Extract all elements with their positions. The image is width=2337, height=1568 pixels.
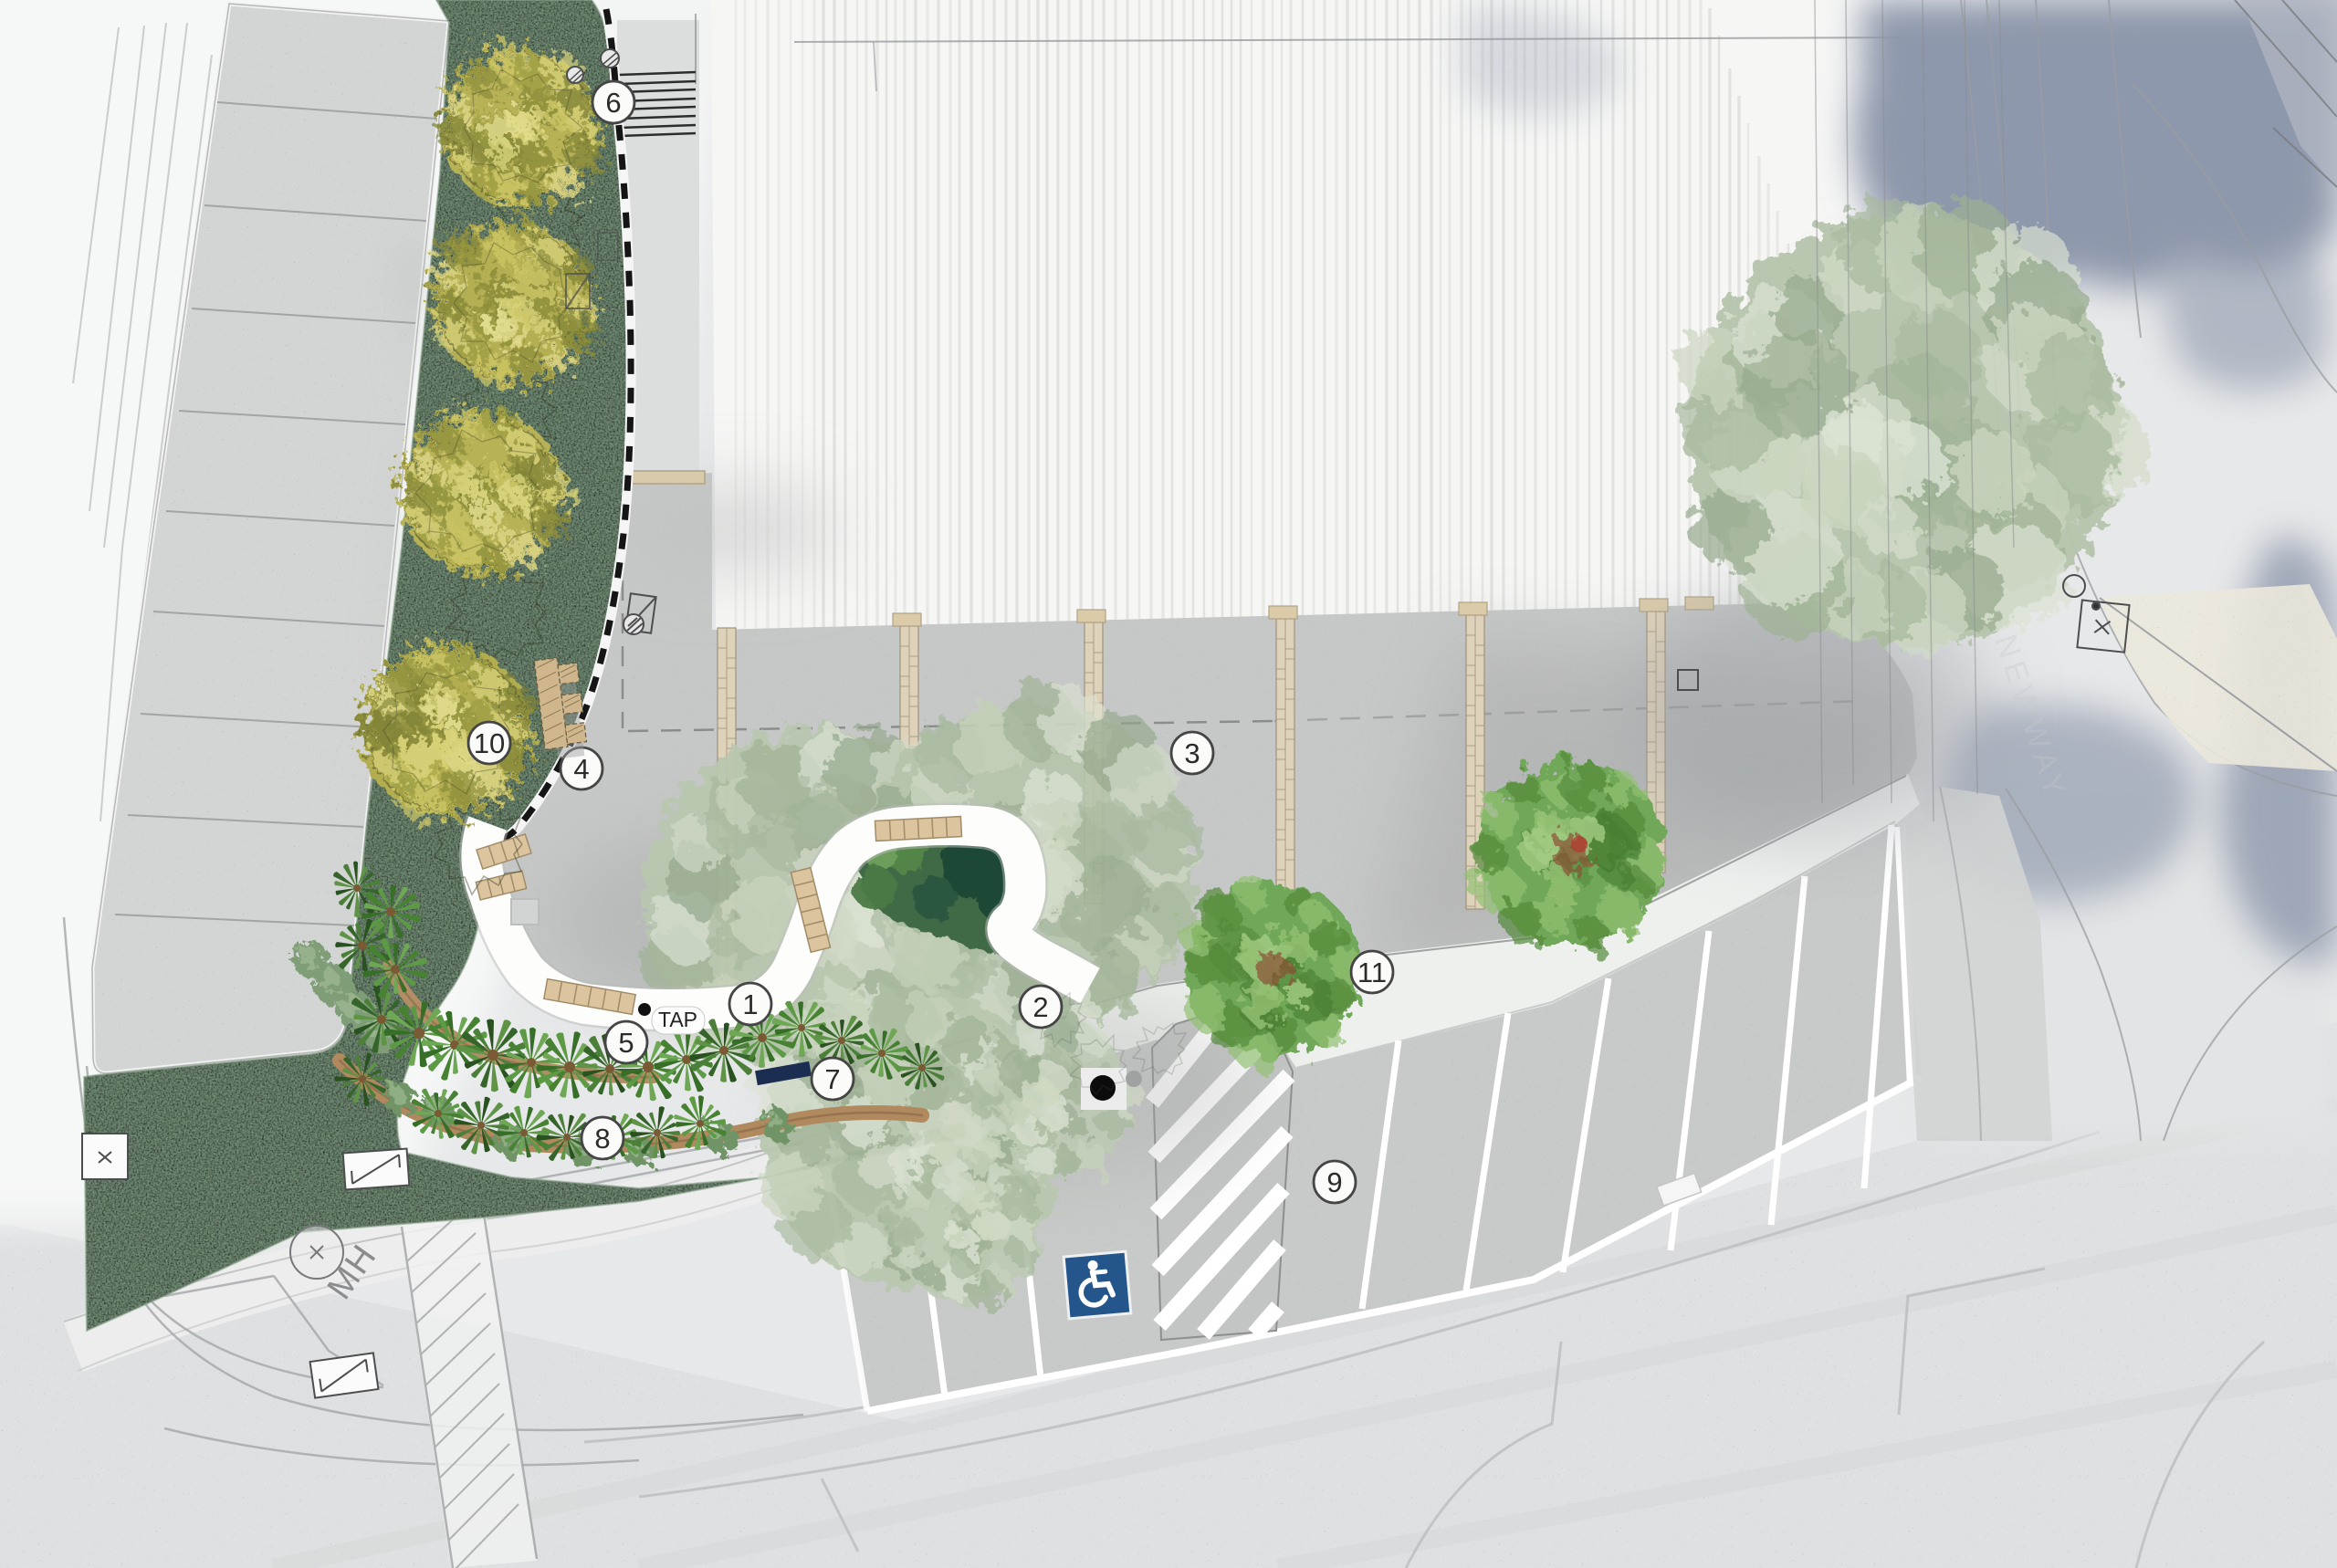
svg-text:7: 7 xyxy=(824,1063,840,1095)
svg-text:4: 4 xyxy=(573,753,589,785)
svg-text:8: 8 xyxy=(594,1123,610,1155)
svg-text:5: 5 xyxy=(618,1027,634,1059)
svg-text:9: 9 xyxy=(1326,1166,1342,1198)
svg-text:3: 3 xyxy=(1184,737,1200,769)
svg-text:11: 11 xyxy=(1357,956,1387,988)
svg-text:10: 10 xyxy=(474,727,505,759)
svg-text:1: 1 xyxy=(742,988,758,1020)
svg-text:2: 2 xyxy=(1032,991,1048,1023)
svg-text:6: 6 xyxy=(605,87,621,119)
svg-text:TAP: TAP xyxy=(658,1008,697,1031)
